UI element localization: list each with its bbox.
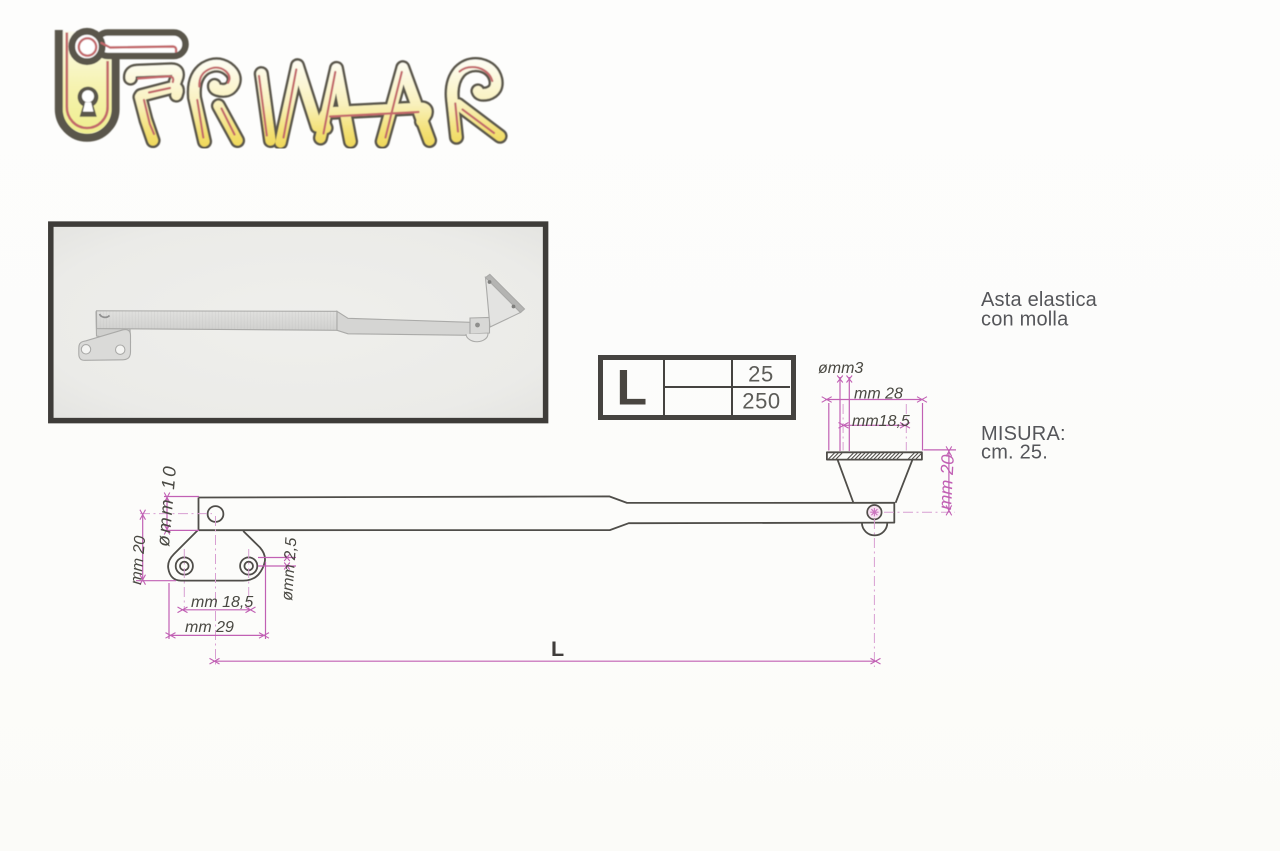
svg-text:cm. 25.: cm. 25. xyxy=(981,442,1048,464)
svg-text:L: L xyxy=(551,637,564,661)
svg-text:mm 20: mm 20 xyxy=(128,535,149,585)
svg-text:mm 29: mm 29 xyxy=(185,619,234,636)
svg-text:mm 20: mm 20 xyxy=(935,454,958,510)
svg-text:ømm3: ømm3 xyxy=(818,360,863,377)
svg-text:ømm 2,5: ømm 2,5 xyxy=(279,537,300,601)
svg-text:mm 28: mm 28 xyxy=(854,386,903,403)
svg-text:ømm 10: ømm 10 xyxy=(152,463,180,547)
svg-text:mm 18,5: mm 18,5 xyxy=(191,594,253,611)
svg-text:Asta elastica: Asta elastica xyxy=(981,289,1098,311)
svg-text:mm18,5: mm18,5 xyxy=(852,413,910,430)
svg-text:con molla: con molla xyxy=(981,309,1069,331)
